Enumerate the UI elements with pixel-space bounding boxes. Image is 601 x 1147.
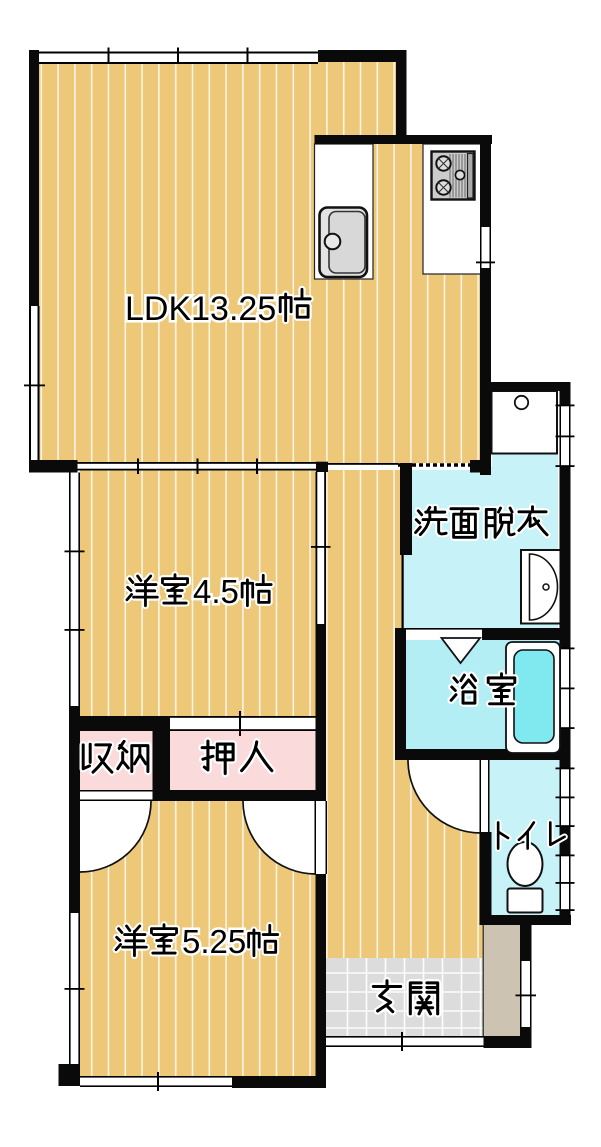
svg-text:4.5: 4.5 [193,573,239,610]
svg-text:LDK13.25: LDK13.25 [125,290,276,328]
svg-text:5.25: 5.25 [182,923,246,960]
